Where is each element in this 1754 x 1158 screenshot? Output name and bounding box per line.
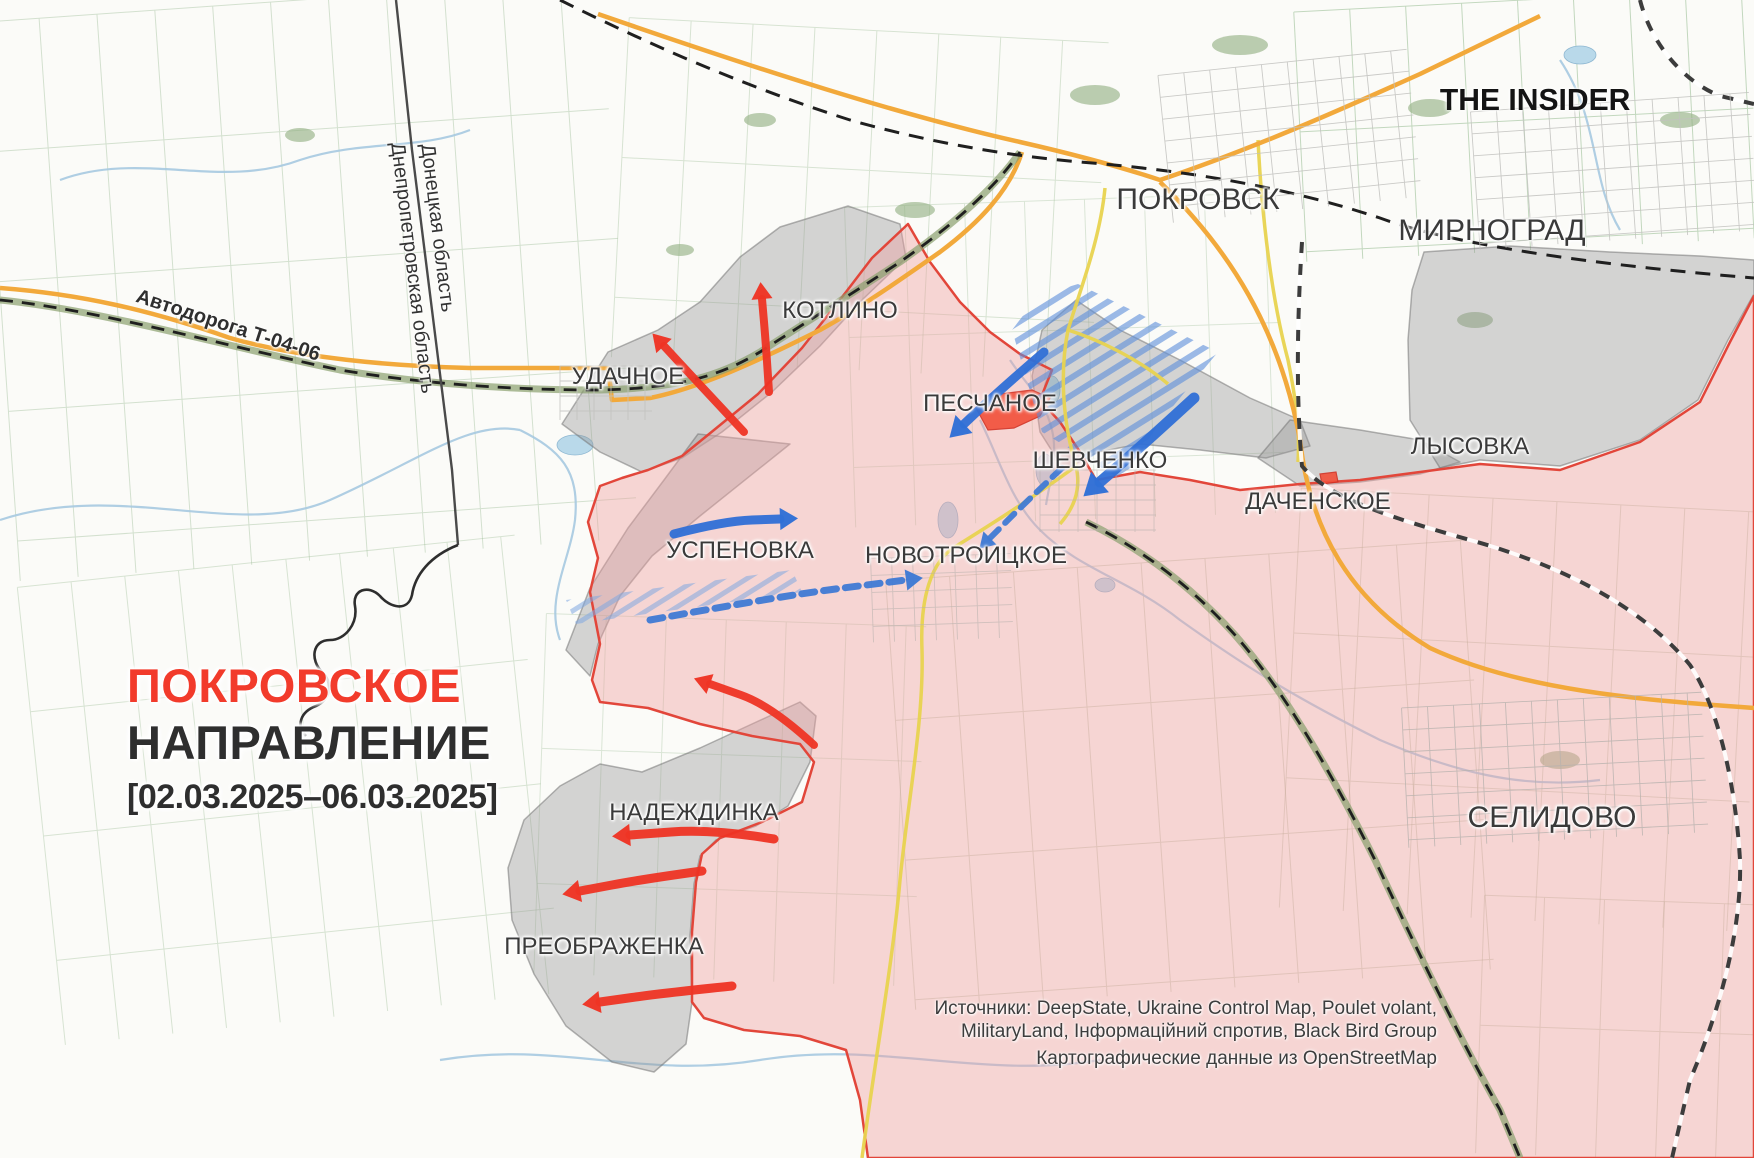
map-canvas: ПОКРОВСКМИРНОГРАДСЕЛИДОВОКОТЛИНОУДАЧНОЕП…: [0, 0, 1754, 1158]
map-title-main: НАПРАВЛЕНИЕ: [127, 719, 497, 766]
sources-credit: Источники: DeepState, Ukraine Control Ma…: [934, 997, 1437, 1070]
map-title-block: ПОКРОВСКОЕ НАПРАВЛЕНИЕ [02.03.2025–06.03…: [127, 662, 497, 814]
sources-line-1: Источники: DeepState, Ukraine Control Ma…: [934, 997, 1437, 1020]
map-date-range: [02.03.2025–06.03.2025]: [127, 780, 497, 814]
map-title-accent: ПОКРОВСКОЕ: [127, 662, 497, 709]
the-insider-logo: THE INSIDER: [1440, 82, 1630, 118]
topographic-map: [0, 0, 1754, 1158]
sources-line-3: Картографические данные из OpenStreetMap: [934, 1047, 1437, 1070]
sources-line-2: MilitaryLand, Інформаційний спротив, Bla…: [934, 1020, 1437, 1043]
